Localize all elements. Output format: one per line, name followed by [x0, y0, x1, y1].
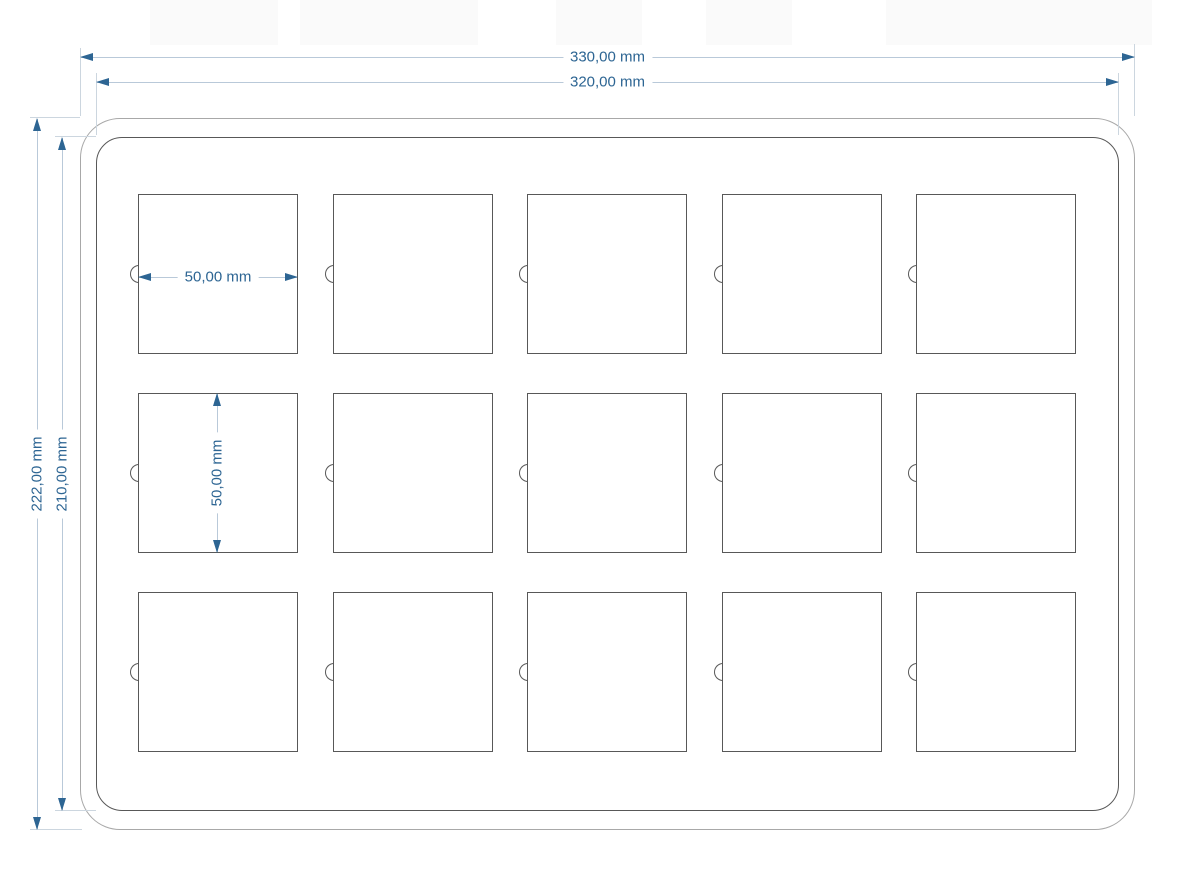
pocket-cell [916, 393, 1076, 553]
arrow-right-icon [1122, 53, 1135, 61]
pocket-cell [722, 393, 882, 553]
watermark-band [300, 0, 478, 45]
pocket-cell [333, 592, 493, 752]
dimension-label-outer-height: 222,00 mm [28, 429, 47, 518]
arrow-left-icon [138, 273, 151, 281]
pocket-cell [916, 592, 1076, 752]
dimension-inner-width: 320,00 mm [96, 75, 1119, 89]
pocket-cell [527, 393, 687, 553]
pocket-cell [333, 194, 493, 354]
dimension-label-pocket-height: 50,00 mm [208, 433, 227, 514]
arrow-left-icon [96, 78, 109, 86]
dimension-label-inner-height: 210,00 mm [53, 429, 72, 518]
technical-drawing-canvas: 330,00 mm 320,00 mm 222,00 mm 210,00 mm … [0, 0, 1187, 890]
arrow-down-icon [213, 540, 221, 553]
watermark-band [556, 0, 642, 45]
pocket-cell [722, 592, 882, 752]
watermark-band [886, 0, 1152, 45]
pocket-cell [138, 592, 298, 752]
arrow-left-icon [80, 53, 93, 61]
arrow-right-icon [1106, 78, 1119, 86]
arrow-down-icon [33, 817, 41, 830]
arrow-up-icon [33, 118, 41, 131]
dimension-pocket-height: 50,00 mm [210, 393, 224, 553]
pocket-cell [527, 194, 687, 354]
dimension-label-inner-width: 320,00 mm [563, 73, 652, 92]
dimension-label-pocket-width: 50,00 mm [178, 268, 259, 287]
pocket-cell [722, 194, 882, 354]
dimension-label-outer-width: 330,00 mm [563, 48, 652, 67]
dimension-pocket-width: 50,00 mm [138, 270, 298, 284]
arrow-up-icon [58, 137, 66, 150]
watermark-band [706, 0, 792, 45]
arrow-down-icon [58, 798, 66, 811]
dimension-outer-width: 330,00 mm [80, 50, 1135, 64]
pocket-cell [916, 194, 1076, 354]
watermark-band [150, 0, 278, 45]
dimension-outer-height: 222,00 mm [30, 118, 44, 830]
pocket-cell [527, 592, 687, 752]
arrow-right-icon [285, 273, 298, 281]
arrow-up-icon [213, 393, 221, 406]
dimension-inner-height: 210,00 mm [55, 137, 69, 811]
pocket-cell [333, 393, 493, 553]
